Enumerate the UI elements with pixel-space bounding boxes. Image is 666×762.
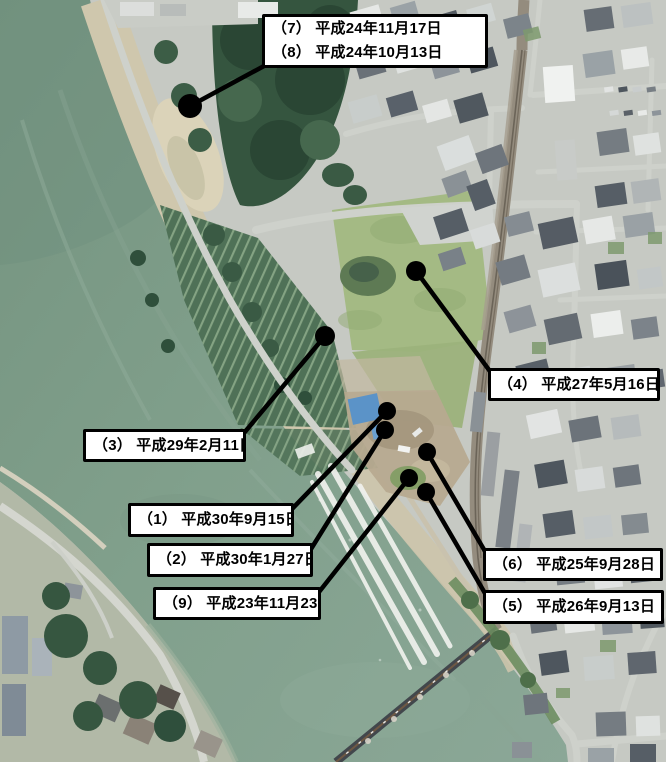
callout-labels: （7） 平成24年11月17日（8） 平成24年10月13日（4） 平成27年5… bbox=[0, 0, 666, 762]
callout-label: （5） 平成26年9月13日 bbox=[493, 595, 661, 619]
callout-box: （1） 平成30年9月15日 bbox=[128, 503, 294, 537]
callout-label: （8） 平成24年10月13日 bbox=[272, 41, 485, 65]
callout-label: （3） 平成29年2月11日 bbox=[93, 434, 243, 458]
callout-box: （9） 平成23年11月23日 bbox=[153, 587, 321, 620]
callout-label: （4） 平成27年5月16日 bbox=[498, 373, 657, 397]
callout-box: （4） 平成27年5月16日 bbox=[488, 368, 660, 401]
callout-label: （7） 平成24年11月17日 bbox=[272, 17, 485, 41]
callout-label: （2） 平成30年1月27日 bbox=[157, 548, 310, 572]
callout-box: （3） 平成29年2月11日 bbox=[83, 429, 246, 462]
callout-label: （6） 平成25年9月28日 bbox=[493, 553, 660, 577]
callout-box: （7） 平成24年11月17日（8） 平成24年10月13日 bbox=[262, 14, 488, 68]
callout-box: （6） 平成25年9月28日 bbox=[483, 548, 663, 581]
callout-box: （2） 平成30年1月27日 bbox=[147, 543, 313, 577]
callout-label: （1） 平成30年9月15日 bbox=[138, 508, 291, 532]
callout-box: （5） 平成26年9月13日 bbox=[483, 590, 664, 624]
annotated-aerial-map: （7） 平成24年11月17日（8） 平成24年10月13日（4） 平成27年5… bbox=[0, 0, 666, 762]
callout-label: （9） 平成23年11月23日 bbox=[163, 592, 318, 616]
